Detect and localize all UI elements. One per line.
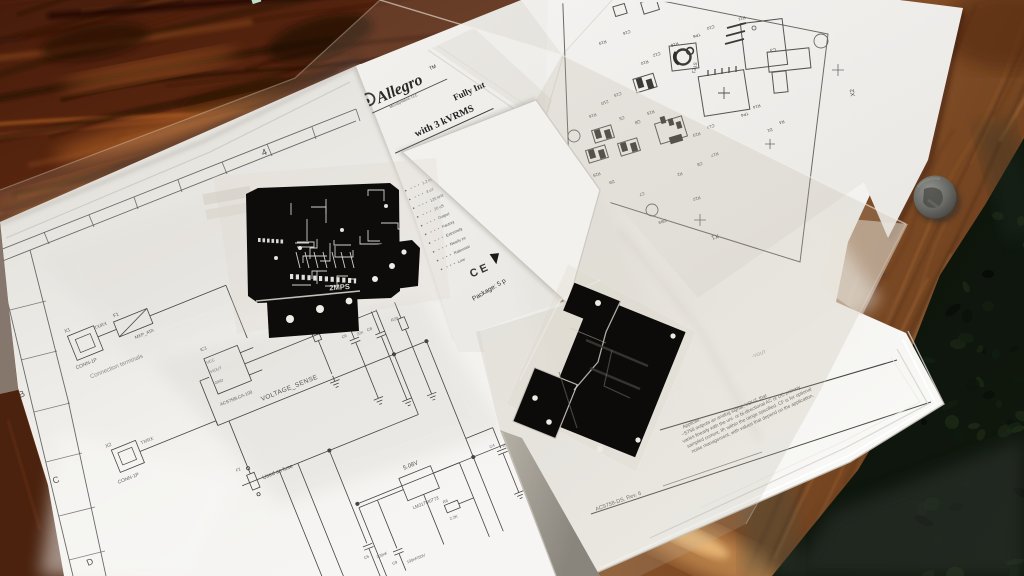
svg-text:2MPS: 2MPS <box>329 282 350 292</box>
